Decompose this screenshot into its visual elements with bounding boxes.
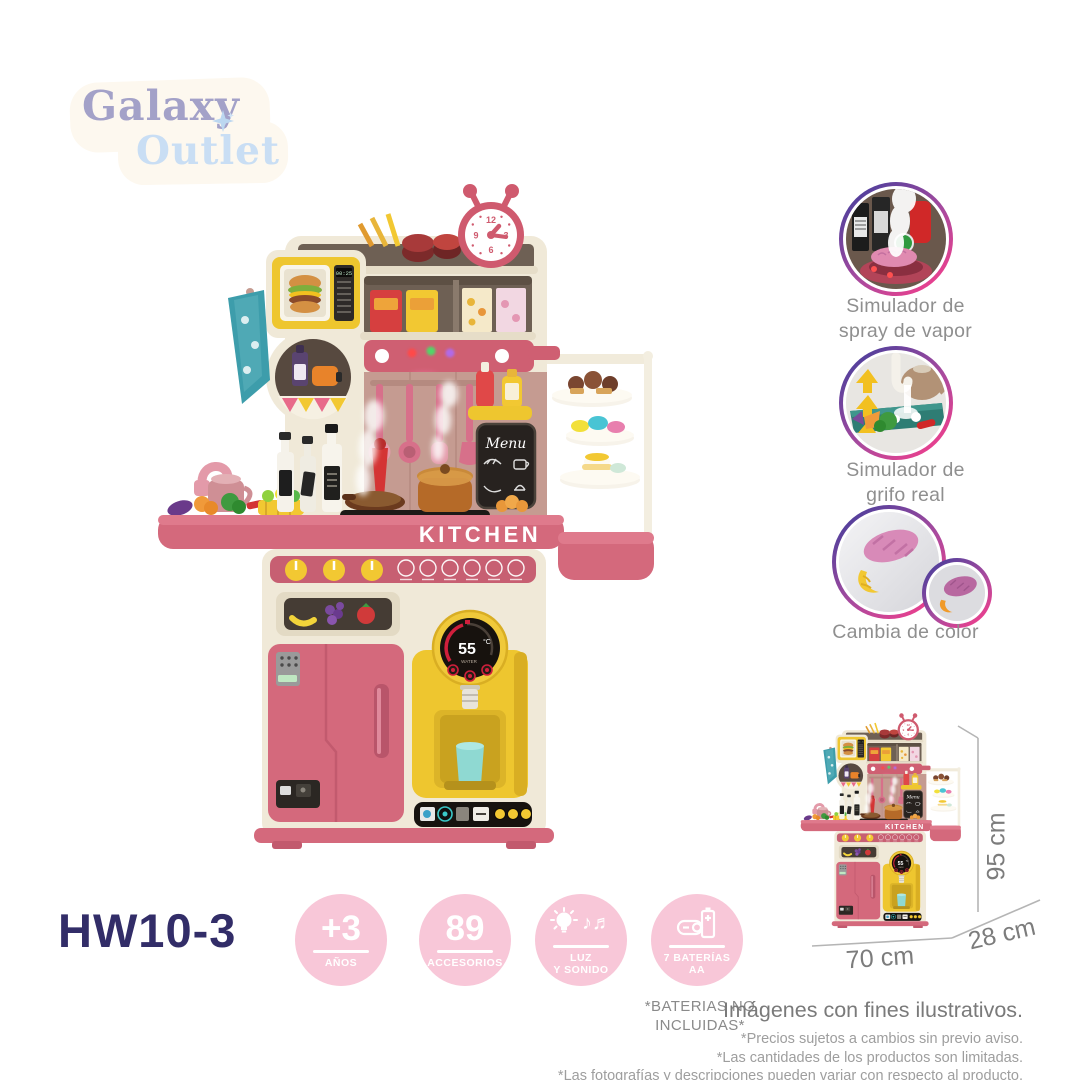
battery-icon [676,905,718,941]
feature-faucet-circle [839,346,953,460]
accessories-label: ACCESORIOS [427,957,503,969]
brand-logo: Galaxy Outlet [60,70,320,190]
feature-color-change-small-circle [922,558,992,628]
badge-divider [437,950,493,953]
accessories-badge: 89 ACCESORIOS [419,894,511,986]
legal-line: *Las cantidades de los productos son lim… [558,1049,1023,1068]
legal-line: *Las fotografías y descripciones pueden … [558,1067,1023,1080]
batteries-badge: 7 BATERÍAS AA [651,894,743,986]
feature-faucet-caption: Simulador de grifo real [808,458,1003,508]
accessories-value: 89 [446,912,485,946]
age-label: AÑOS [325,957,357,969]
feature-color-change-caption: Cambia de color [803,620,1008,645]
feature-color-change-small-ring [926,562,988,624]
color-change-after-photo-icon [929,565,985,621]
batteries-label: 7 BATERÍAS AA [664,952,731,976]
legal-block: Imágenes con fines ilustrativos. *Precio… [558,998,1023,1080]
legal-line: *Precios sujetos a cambios sin previo av… [558,1030,1023,1049]
badge-divider [669,945,725,948]
steam-spray-photo-icon [846,189,946,289]
feature-steam-ring [843,186,949,292]
feature-steam-circle [839,182,953,296]
badge-divider [553,945,609,948]
feature-faucet-ring [843,350,949,456]
logo-word-outlet: Outlet [136,128,280,174]
legal-title: Imágenes con fines ilustrativos. [558,998,1023,1023]
lightbulb-icon [550,907,580,939]
age-value: +3 [321,912,361,946]
age-badge: +3 AÑOS [295,894,387,986]
badge-divider [313,950,369,953]
product-ad-page: Galaxy Outlet [0,0,1080,1080]
real-faucet-photo-icon [846,353,946,453]
dimension-width-label: 70 cm [837,941,923,976]
model-number: HW10-3 [58,903,236,958]
feature-steam-caption: Simulador de spray de vapor [808,294,1003,344]
music-notes-icon: ♪♬ [582,913,612,933]
light-sound-badge: ♪♬ LUZ Y SONIDO [535,894,627,986]
product-illustration: 12 3 6 9 [150,180,660,852]
dimensions-product-thumbnail [798,712,963,929]
dimension-height-label: 95 cm [983,812,1012,882]
light-sound-label: LUZ Y SONIDO [553,952,608,976]
